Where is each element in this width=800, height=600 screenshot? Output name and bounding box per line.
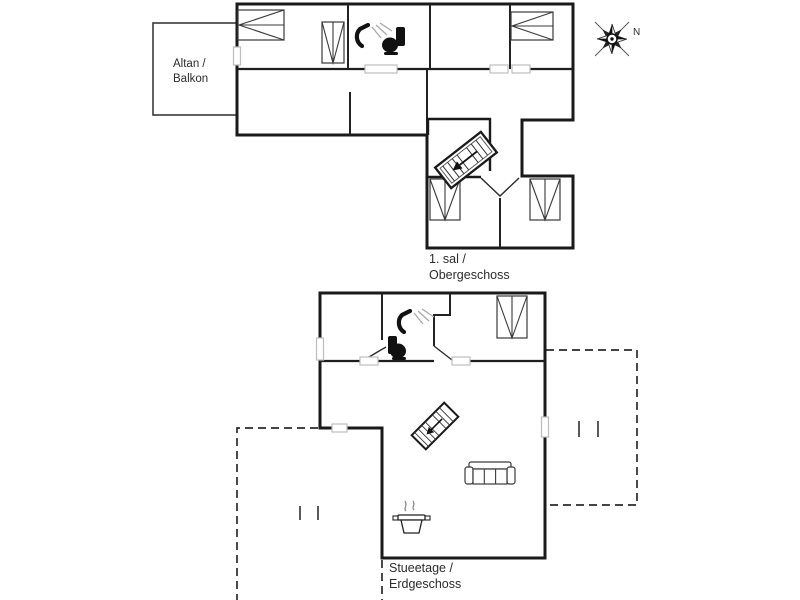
bed-icon — [238, 10, 284, 40]
upper-floor-label-line1: 1. sal / — [429, 252, 466, 266]
shower-icon — [399, 309, 434, 332]
upper-floor-label-line2: Obergeschoss — [429, 268, 510, 282]
ground-floor-label-line1: Stueetage / — [389, 561, 453, 575]
terrace-left — [237, 428, 382, 600]
toilet-icon — [388, 336, 406, 360]
toilet-icon — [382, 27, 405, 55]
sofa-icon — [465, 462, 515, 484]
cooking-pot-icon — [393, 501, 430, 533]
ground-floor-plan: Stueetage / Erdgeschoss — [237, 293, 637, 600]
wardrobe-icon — [530, 179, 560, 220]
bed-icon — [511, 12, 553, 40]
ground-bathroom-step-wall — [434, 293, 450, 346]
upper-floor-plan: Altan / Balkon — [153, 4, 573, 282]
wardrobe-icon — [497, 296, 527, 338]
ground-floor-label-line2: Erdgeschoss — [389, 577, 461, 591]
compass-north-label: N — [633, 27, 640, 38]
balcony-label-line1: Altan / — [173, 58, 206, 70]
compass-rose: N — [595, 22, 640, 56]
door-leaf — [434, 346, 452, 360]
terrace-right — [546, 350, 637, 505]
wardrobe-icon — [322, 22, 344, 63]
balcony-label-line2: Balkon — [173, 73, 208, 85]
staircase-icon — [412, 403, 459, 450]
staircase-icon — [435, 132, 497, 188]
double-door-swing — [481, 178, 519, 196]
balcony: Altan / Balkon — [153, 23, 237, 115]
floor-plan-canvas: Altan / Balkon — [0, 0, 800, 600]
